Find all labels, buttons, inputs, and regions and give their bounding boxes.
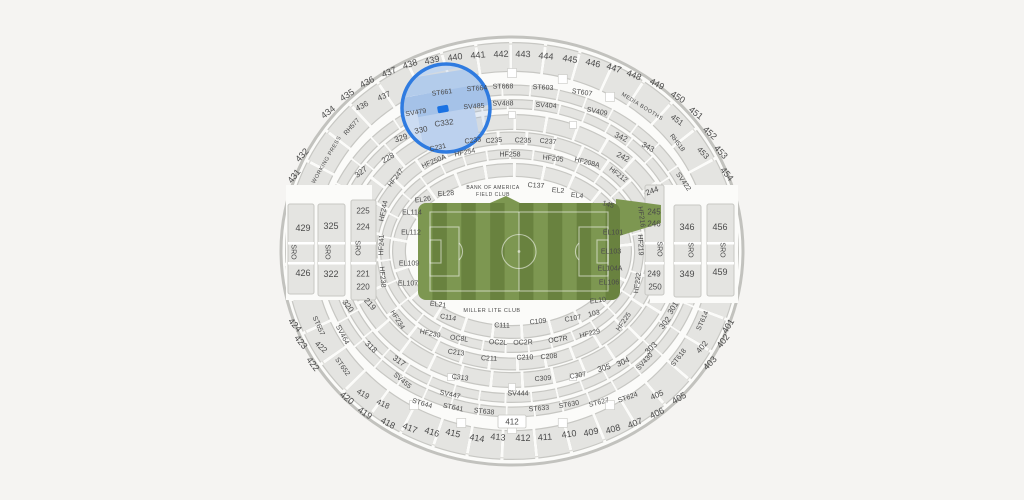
- section-label[interactable]: 224: [356, 223, 370, 232]
- section-label[interactable]: SRO: [290, 244, 297, 260]
- section-label[interactable]: HF241: [378, 234, 386, 255]
- area-label: MILLER LITE CLUB: [463, 308, 520, 314]
- section-label[interactable]: SRO: [656, 241, 663, 257]
- area-label: FIELD CLUB: [476, 192, 510, 198]
- section-label[interactable]: 443: [515, 49, 530, 59]
- section-label[interactable]: EL28: [438, 190, 455, 198]
- section-label[interactable]: 245: [647, 208, 661, 217]
- section-label[interactable]: 413: [490, 431, 506, 442]
- section-label[interactable]: SV488: [492, 100, 513, 107]
- section-label[interactable]: 440: [447, 51, 463, 63]
- seat-map-stage: 4314324344354364374384394404414424434444…: [0, 0, 1024, 500]
- section-label[interactable]: 246: [647, 220, 661, 229]
- section-label[interactable]: 444: [538, 50, 554, 61]
- section-label[interactable]: EL112: [401, 230, 421, 237]
- section-label[interactable]: ST664: [466, 85, 487, 93]
- section-label[interactable]: EL107: [398, 281, 418, 288]
- section-label[interactable]: 412: [515, 433, 530, 443]
- section-label[interactable]: C235: [485, 137, 502, 145]
- section-label[interactable]: 426: [295, 268, 310, 278]
- section-label[interactable]: 220: [356, 283, 370, 292]
- section-label[interactable]: 322: [323, 269, 338, 279]
- section-label[interactable]: SV444: [507, 391, 528, 398]
- section-label[interactable]: C237: [539, 138, 556, 146]
- section-label[interactable]: ST668: [493, 83, 514, 90]
- section-label[interactable]: C210: [517, 354, 534, 362]
- section-label[interactable]: SV485: [463, 103, 485, 111]
- section-label[interactable]: OC2R: [513, 339, 533, 347]
- section-label[interactable]: 442: [493, 49, 508, 60]
- section-label[interactable]: 249: [647, 270, 661, 279]
- section-label[interactable]: SRO: [354, 240, 361, 256]
- stadium-map[interactable]: 4314324344354364374384394404414424434444…: [0, 0, 1024, 500]
- section-label[interactable]: SRO: [719, 242, 726, 258]
- section-label[interactable]: SRO: [324, 244, 331, 260]
- section-label[interactable]: 410: [561, 428, 577, 440]
- section-label[interactable]: 456: [712, 222, 727, 232]
- section-label[interactable]: 325: [323, 221, 338, 231]
- section-label[interactable]: OC2L: [489, 339, 508, 347]
- area-label: BANK OF AMERICA: [466, 185, 520, 191]
- section-label[interactable]: EL104A: [598, 266, 623, 273]
- section-label[interactable]: SRO: [687, 242, 694, 258]
- section-label[interactable]: C137: [527, 182, 544, 190]
- section-label[interactable]: HF219: [636, 234, 644, 255]
- section-label[interactable]: HF258: [499, 152, 520, 159]
- section-label[interactable]: ST603: [533, 84, 554, 92]
- section-label[interactable]: 346: [679, 222, 694, 232]
- section-label[interactable]: 459: [712, 267, 727, 277]
- section-label[interactable]: 412: [505, 418, 519, 427]
- section-label[interactable]: EL103: [601, 249, 621, 256]
- section-label[interactable]: C208: [540, 353, 557, 361]
- section-label[interactable]: EL109: [399, 261, 419, 268]
- section-label[interactable]: 225: [356, 207, 370, 216]
- section-label[interactable]: 411: [537, 432, 552, 443]
- section-label[interactable]: EL101: [603, 230, 623, 237]
- section-label[interactable]: C111: [494, 322, 510, 330]
- section-label[interactable]: EL106: [599, 280, 619, 287]
- section-label[interactable]: 441: [470, 49, 486, 60]
- section-label[interactable]: 250: [648, 283, 662, 292]
- section-label[interactable]: 429: [295, 223, 310, 233]
- section-label[interactable]: 221: [356, 270, 370, 279]
- section-label[interactable]: EL2: [551, 187, 564, 195]
- section-label[interactable]: EL114: [402, 210, 422, 217]
- section-label[interactable]: 349: [679, 269, 694, 279]
- section-label[interactable]: C309: [534, 375, 551, 383]
- section-label[interactable]: SV404: [535, 102, 557, 110]
- section-label[interactable]: C235: [515, 137, 532, 145]
- section-label[interactable]: C211: [481, 355, 498, 363]
